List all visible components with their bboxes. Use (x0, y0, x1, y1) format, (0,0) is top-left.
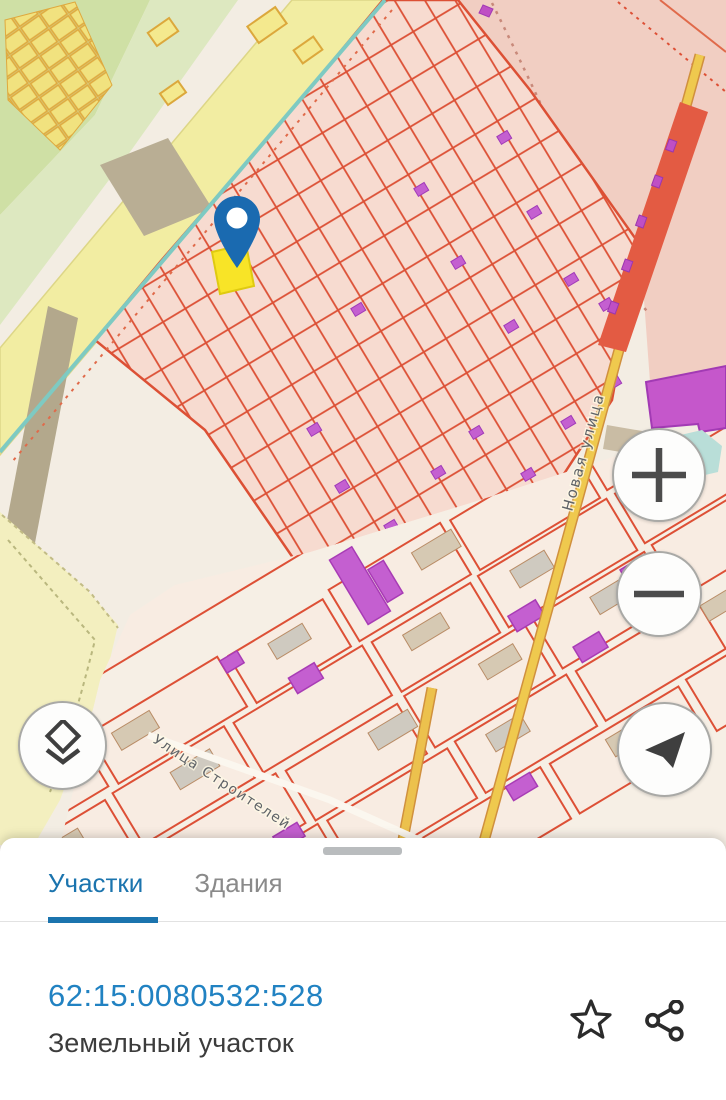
map-canvas[interactable]: Новая улица Улица Строителей (0, 0, 726, 845)
parcel-card: 62:15:0080532:528 Земельный участок (48, 978, 324, 1059)
share-button[interactable] (642, 998, 688, 1044)
cadastral-map-app: Новая улица Улица Строителей (0, 0, 726, 1100)
location-arrow-icon (643, 730, 687, 770)
share-icon (644, 1000, 686, 1042)
favorite-star-button[interactable] (568, 998, 614, 1044)
parcel-type-label: Земельный участок (48, 1028, 324, 1059)
plus-icon (630, 446, 688, 504)
layers-icon (37, 720, 89, 772)
minus-icon (632, 567, 686, 621)
zoom-in-button[interactable] (612, 428, 706, 522)
star-icon (568, 998, 614, 1044)
bottom-sheet: Участки Здания 62:15:0080532:528 Земельн… (0, 838, 726, 1100)
drag-handle[interactable] (323, 847, 402, 855)
active-tab-underline (48, 917, 158, 923)
card-actions (568, 998, 688, 1044)
compass-button[interactable] (617, 702, 712, 797)
layers-button[interactable] (18, 701, 107, 790)
tab-buildings[interactable]: Здания (194, 868, 282, 899)
tab-plots[interactable]: Участки (48, 868, 143, 899)
cadastral-number-link[interactable]: 62:15:0080532:528 (48, 978, 324, 1014)
zoom-out-button[interactable] (616, 551, 702, 637)
tab-bar: Участки Здания (48, 868, 283, 899)
